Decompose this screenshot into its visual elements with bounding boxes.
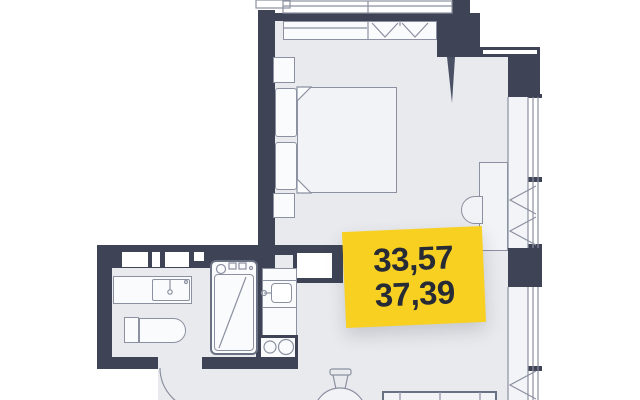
- desk-chair: [461, 196, 483, 224]
- wall-right-upper: [508, 57, 540, 97]
- entrance-band-glazing: [483, 50, 537, 54]
- kitchen-counter-divider: [262, 307, 297, 308]
- toilet: [139, 318, 186, 343]
- window-frame-tick: [528, 244, 542, 249]
- wall-topright-block: [437, 13, 480, 57]
- vent-shaft: [165, 252, 189, 267]
- kitchen-counter-divider: [262, 280, 297, 281]
- window-frame-tick: [528, 366, 542, 371]
- window-frame-tick: [528, 177, 542, 182]
- floor-entry: [158, 369, 275, 400]
- bathtub-inner: [214, 274, 254, 351]
- pillow: [275, 88, 297, 137]
- area-value-bottom: 37,39: [374, 275, 456, 313]
- floorplan: 33,57 37,39: [0, 0, 640, 400]
- wall-right-mid: [508, 248, 542, 287]
- vent-shaft: [122, 252, 148, 267]
- toilet-tank: [124, 317, 139, 343]
- floor-bedroom: [275, 21, 437, 400]
- bed: [297, 87, 397, 193]
- wall-shaft-bottom: [293, 278, 343, 283]
- stove: [258, 335, 298, 360]
- duct-shaft: [297, 253, 332, 278]
- area-label[interactable]: 33,57 37,39: [342, 226, 486, 328]
- wall-top: [275, 13, 440, 21]
- wall-bathroom-bottom: [97, 357, 158, 369]
- nightstand: [273, 57, 295, 83]
- wardrobe: [283, 21, 437, 40]
- kitchen-sink: [271, 283, 292, 303]
- balcony-glazing: [283, 1, 452, 13]
- sofa: [382, 391, 497, 400]
- wall-bathroom-left: [97, 245, 112, 369]
- wall-bedroom-left: [258, 10, 275, 268]
- nightstand: [273, 193, 295, 218]
- floor-door-opening: [158, 357, 202, 369]
- vent-shaft: [194, 252, 204, 261]
- desk: [479, 162, 508, 251]
- pillow: [275, 142, 297, 190]
- balcony-glazing: [256, 0, 290, 8]
- wall-topright-upper: [452, 0, 470, 14]
- bathroom-sink: [152, 279, 190, 301]
- vent-shaft: [152, 252, 160, 267]
- window-frame-tick: [528, 94, 542, 98]
